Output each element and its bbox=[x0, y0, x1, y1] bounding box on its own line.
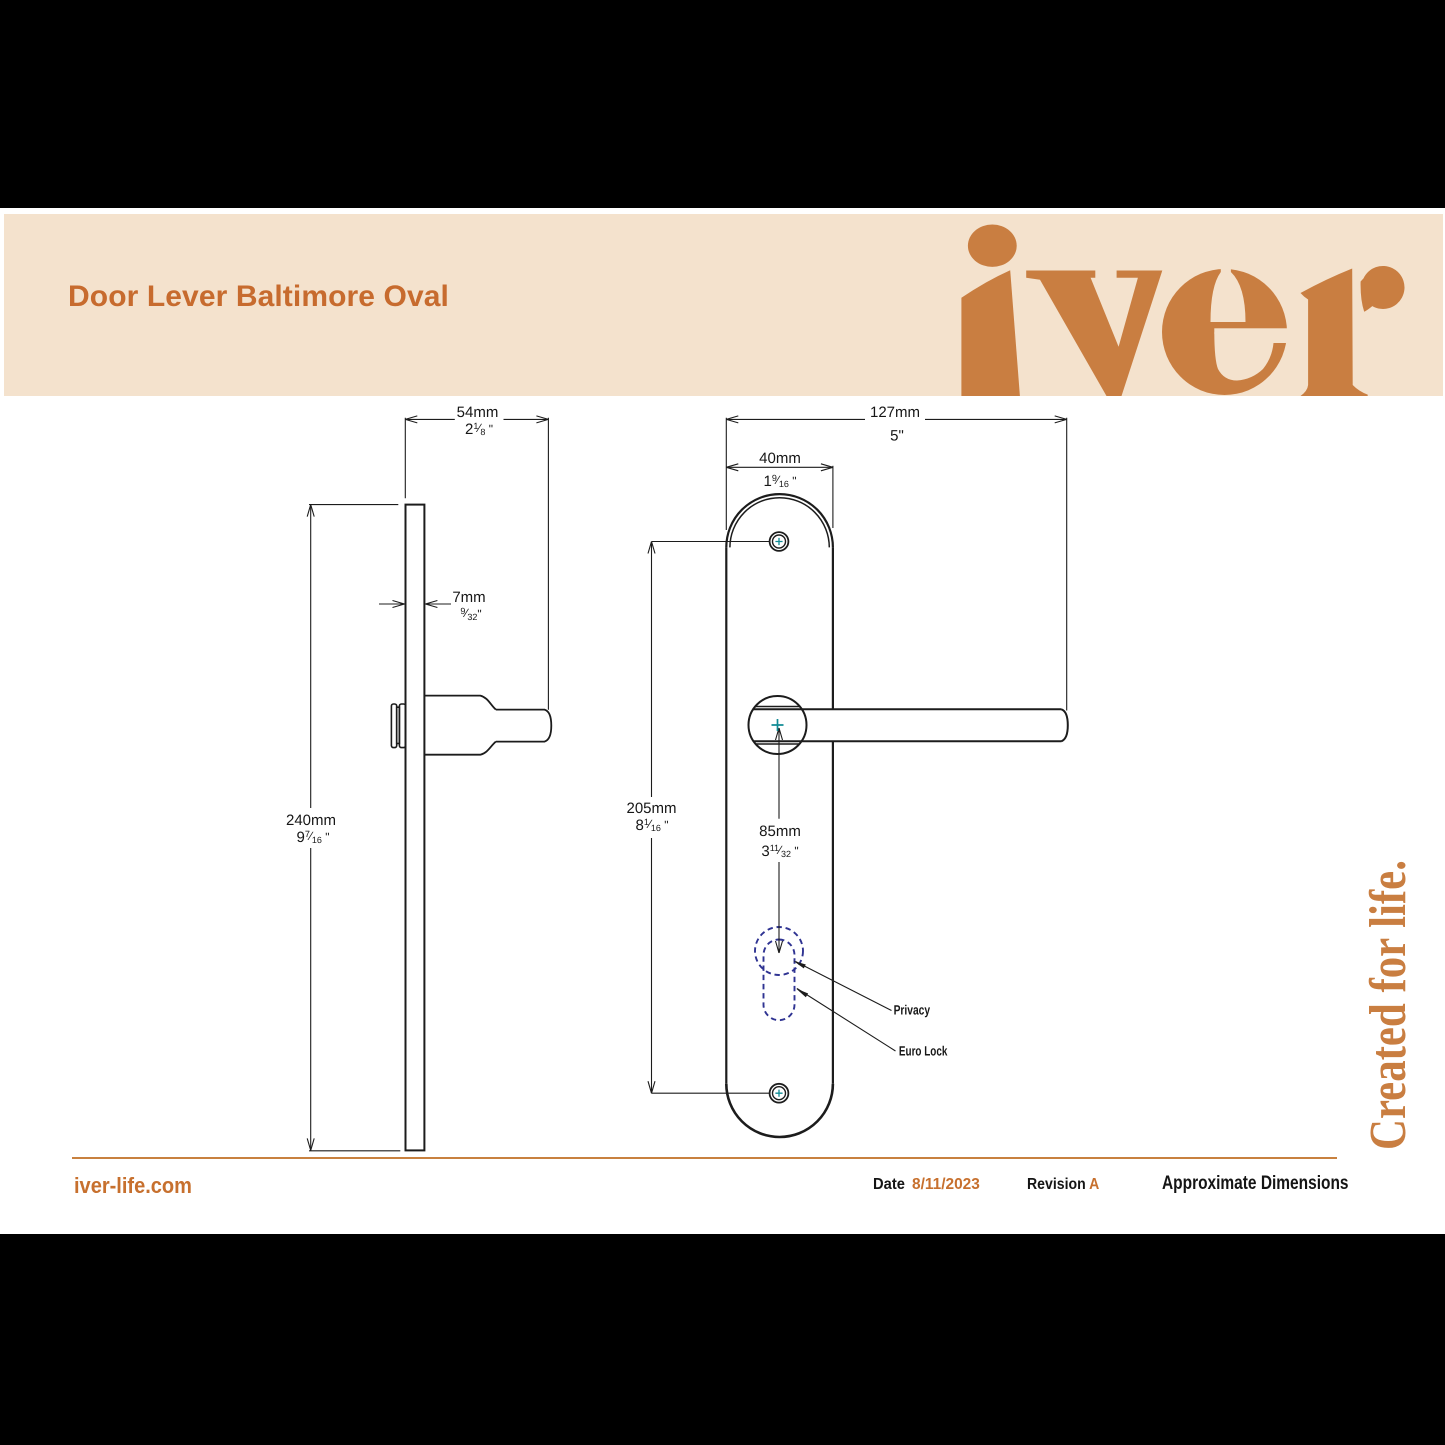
svg-text:9⁄32": 9⁄32" bbox=[460, 606, 481, 622]
svg-text:40mm: 40mm bbox=[759, 450, 801, 467]
svg-text:54mm: 54mm bbox=[457, 404, 499, 421]
svg-text:205mm: 205mm bbox=[626, 800, 676, 817]
svg-text:Euro Lock: Euro Lock bbox=[899, 1044, 948, 1059]
svg-text:85mm: 85mm bbox=[759, 823, 801, 840]
svg-text:97⁄16 ": 97⁄16 " bbox=[297, 829, 330, 846]
svg-text:19⁄16 ": 19⁄16 " bbox=[764, 473, 797, 490]
svg-text:21⁄8 ": 21⁄8 " bbox=[465, 421, 493, 438]
svg-text:127mm: 127mm bbox=[870, 404, 920, 421]
svg-text:311⁄32 ": 311⁄32 " bbox=[761, 843, 798, 860]
svg-text:81⁄16 ": 81⁄16 " bbox=[636, 817, 669, 834]
svg-text:7mm: 7mm bbox=[452, 589, 485, 606]
svg-text:240mm: 240mm bbox=[286, 812, 336, 829]
svg-text:Privacy: Privacy bbox=[894, 1003, 931, 1018]
svg-text:5": 5" bbox=[890, 428, 904, 445]
